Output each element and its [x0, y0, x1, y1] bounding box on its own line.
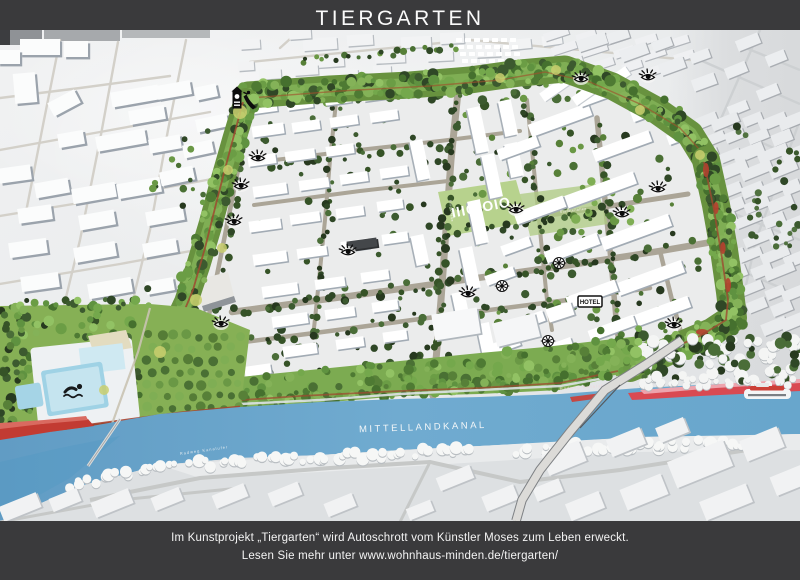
svg-text:TIERGARTEN: TIERGARTEN — [316, 7, 485, 30]
svg-text:Im Kunstprojekt „Tiergarten“ w: Im Kunstprojekt „Tiergarten“ wird Autosc… — [171, 532, 629, 544]
svg-text:HOTEL: HOTEL — [580, 300, 601, 306]
svg-text:Lesen Sie mehr unter www.wohnh: Lesen Sie mehr unter www.wohnhaus-minden… — [242, 550, 559, 562]
